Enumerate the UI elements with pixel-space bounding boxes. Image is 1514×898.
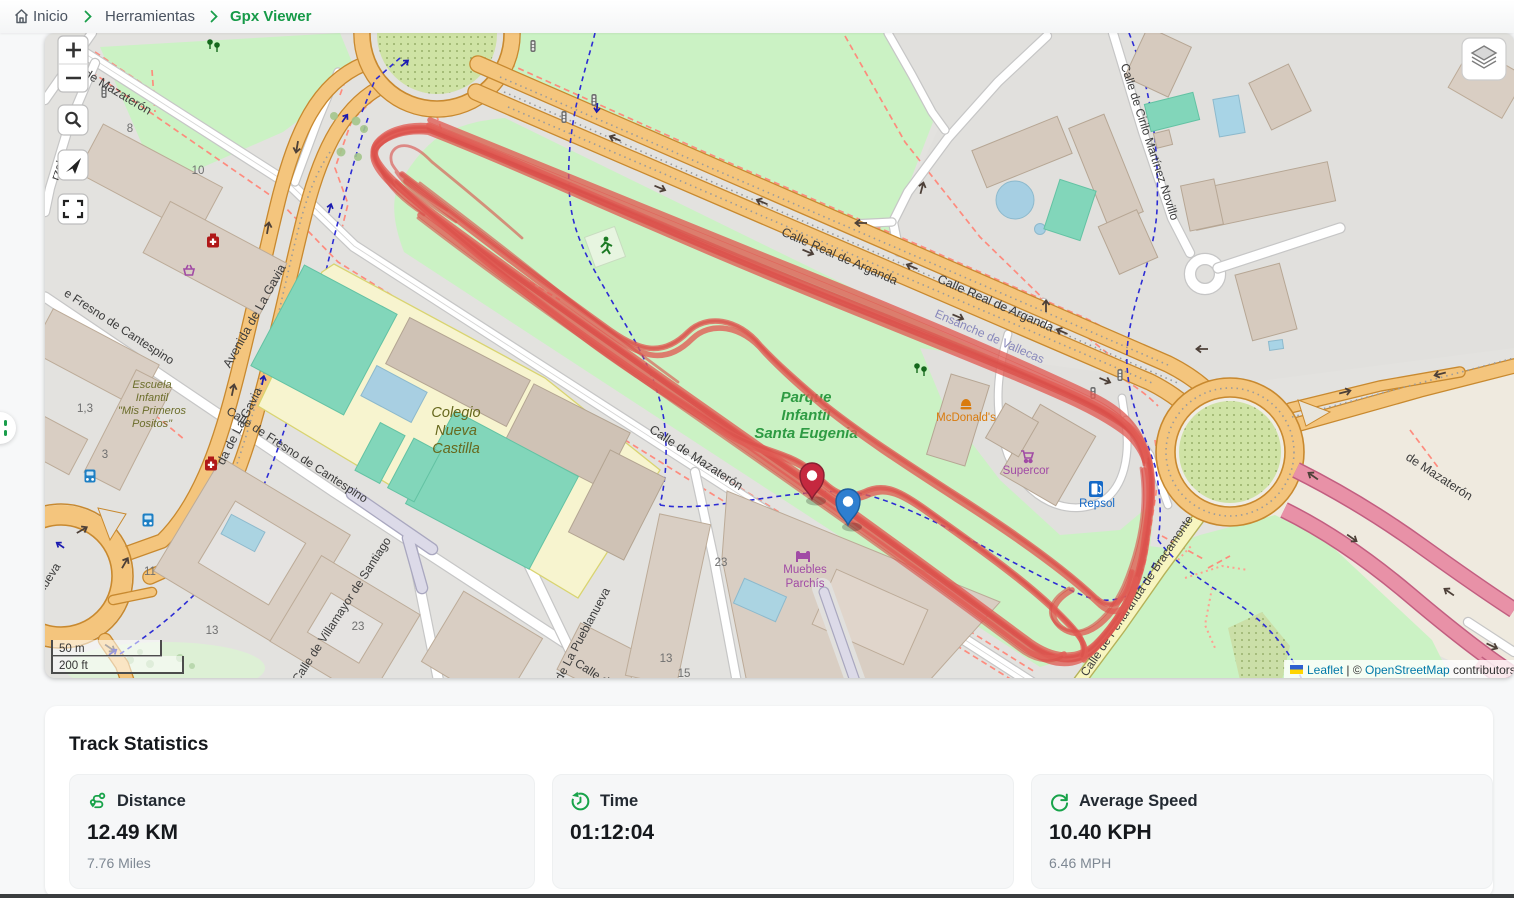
svg-text:11: 11: [144, 566, 156, 578]
svg-text:23: 23: [715, 557, 728, 569]
svg-text:Santa Eugenia: Santa Eugenia: [754, 425, 857, 442]
svg-text:13: 13: [206, 625, 219, 637]
svg-text:Repsol: Repsol: [1079, 498, 1115, 510]
svg-text:50 m: 50 m: [59, 643, 85, 655]
svg-text:Muebles: Muebles: [783, 564, 827, 576]
svg-text:Infantil: Infantil: [136, 392, 169, 404]
svg-text:23: 23: [352, 621, 365, 633]
svg-text:Escuela: Escuela: [132, 379, 171, 391]
svg-text:13: 13: [660, 653, 673, 665]
svg-text:1,3: 1,3: [77, 403, 93, 415]
svg-text:8: 8: [127, 123, 133, 135]
svg-text:15: 15: [678, 668, 691, 678]
svg-text:Leaflet | © OpenStreetMap cont: Leaflet | © OpenStreetMap contributors: [1307, 663, 1514, 677]
svg-text:3: 3: [102, 449, 108, 461]
svg-text:Colegio: Colegio: [431, 405, 480, 421]
svg-text:Positos": Positos": [132, 418, 173, 430]
svg-text:Castilla: Castilla: [432, 441, 480, 457]
svg-text:"Mis Primeros: "Mis Primeros: [118, 405, 187, 417]
svg-text:200 ft: 200 ft: [59, 660, 89, 672]
svg-text:Supercor: Supercor: [1003, 465, 1050, 477]
svg-text:Parchís: Parchís: [786, 578, 825, 590]
svg-text:10: 10: [192, 165, 205, 177]
svg-text:Nueva: Nueva: [435, 423, 477, 439]
svg-text:McDonald's: McDonald's: [936, 412, 996, 424]
